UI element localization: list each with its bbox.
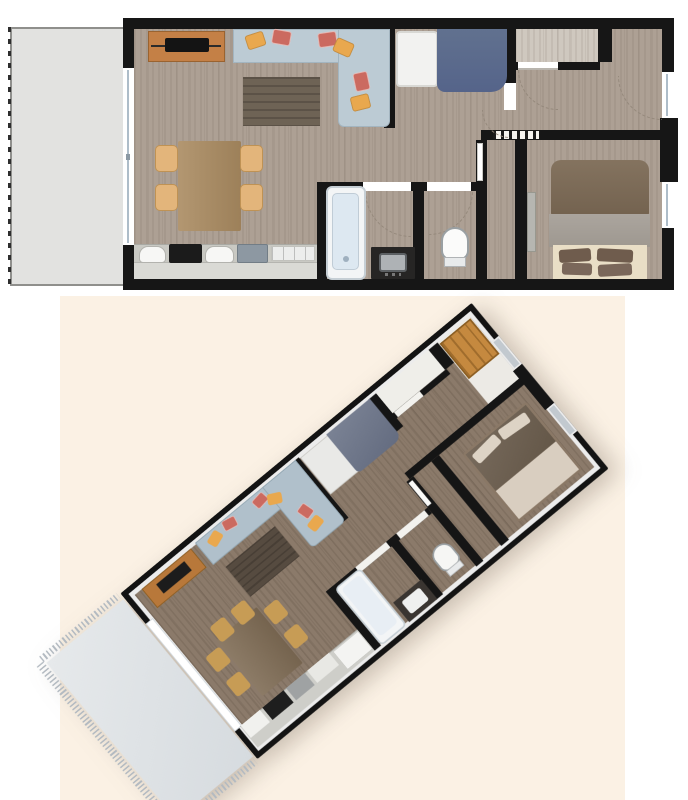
balcony-floor [10, 27, 125, 286]
dining-table [178, 141, 241, 231]
dining-chair-2 [155, 184, 178, 211]
bedroom2-foot-pillow-1 [559, 248, 592, 263]
sofa-pillow-red-1 [271, 28, 292, 46]
kitchen-dishwasher [271, 246, 315, 261]
living-rug [243, 77, 320, 126]
floor-plan-sheet [0, 0, 688, 800]
bedroom2-blanket [549, 214, 650, 247]
kitchen-cabinet-band [134, 262, 317, 279]
door-gap-wc [427, 182, 471, 191]
bathtub-drain [343, 256, 349, 262]
door-gap-bathroom [363, 182, 411, 191]
kitchen-glass-hob [237, 244, 268, 263]
door-gap-bedroom1 [504, 83, 516, 110]
bedroom2-headboard-cushion [551, 160, 649, 217]
dining-chair-4 [240, 184, 263, 211]
dining-chair-3 [240, 145, 263, 172]
tv-screen [165, 38, 209, 52]
door-leaf-corridor [477, 143, 483, 181]
wall-pillar-right [660, 118, 678, 182]
bedroom2-closet-strip [527, 192, 536, 252]
toilet-bowl [441, 227, 469, 260]
window-right-lower-glass-line [666, 184, 668, 226]
balcony-dashed-rail [8, 27, 11, 286]
bedroom2-foot-pillow-4 [598, 263, 633, 277]
dining-chair-1 [155, 145, 178, 172]
window-right-upper-glass-line [666, 74, 668, 116]
floor-plan-2d-top-view [0, 0, 688, 295]
kitchen-sink-2 [205, 246, 234, 263]
bedroom1-pillow [396, 31, 438, 87]
kitchen-cooktop [169, 244, 202, 263]
bedroom2-foot-pillow-2 [597, 248, 634, 263]
entry-floor [515, 29, 600, 62]
bedroom2-foot-pillow-3 [562, 262, 592, 275]
window-right-lower [662, 182, 674, 228]
door-leaf-entry [518, 68, 558, 70]
window-left-handle [126, 154, 130, 160]
bedroom1-duvet [437, 29, 507, 92]
wall-entry-right [598, 29, 612, 62]
vanity-faucet-dots [385, 273, 401, 276]
vanity-sink [379, 253, 407, 272]
window-right-upper [662, 72, 674, 118]
toilet-base [444, 257, 466, 267]
kitchen-sink [139, 246, 166, 263]
wall-bedroom2-left [515, 140, 527, 279]
